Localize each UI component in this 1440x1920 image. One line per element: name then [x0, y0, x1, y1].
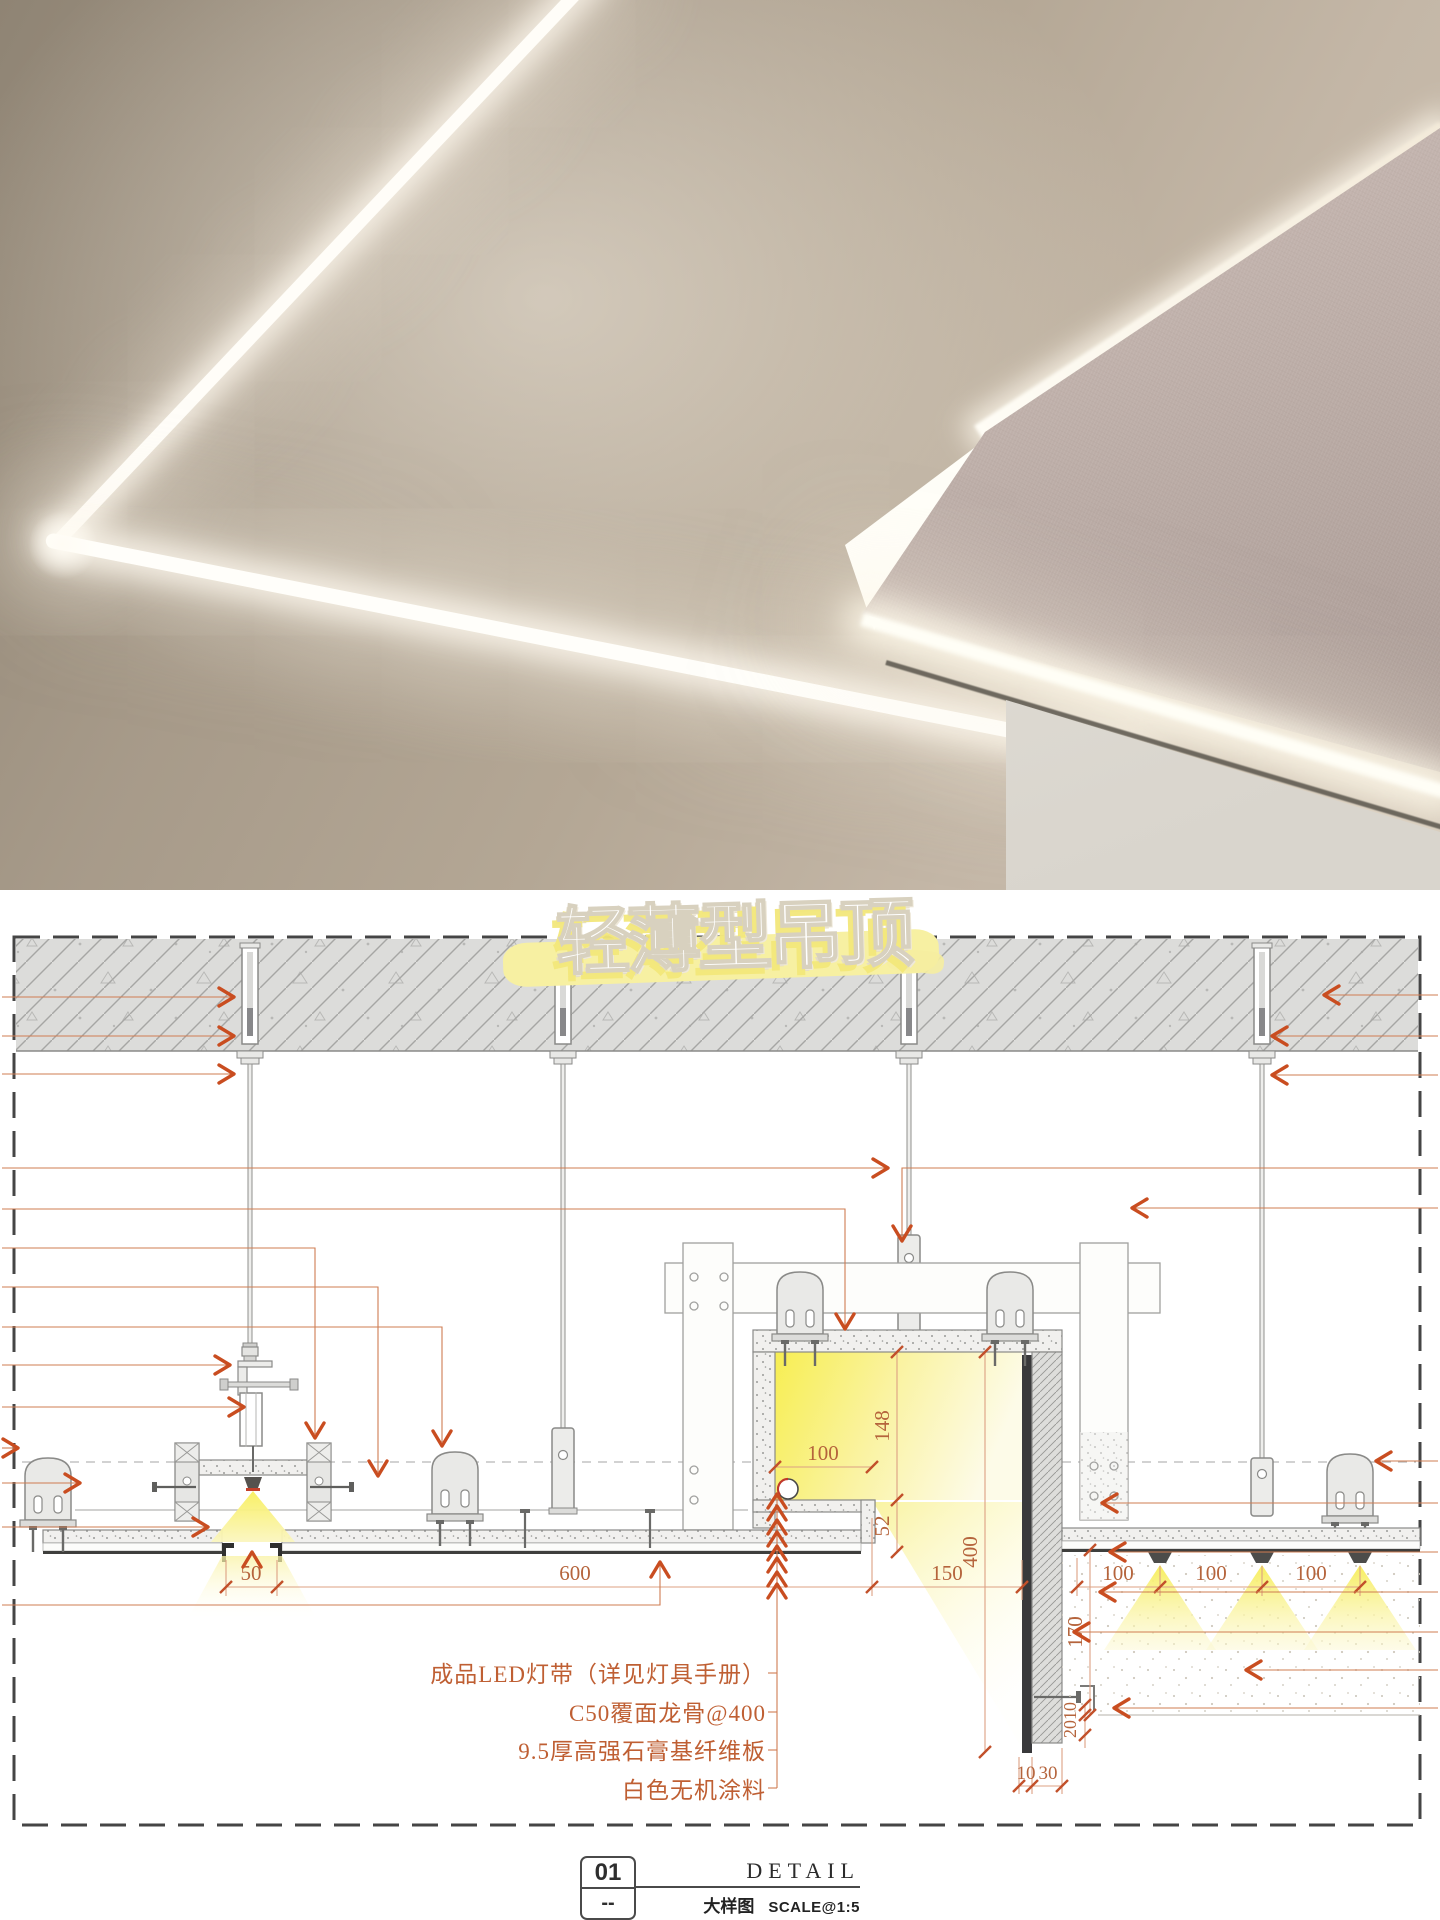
vertical-channel [1251, 1458, 1273, 1516]
light-cone [211, 1491, 295, 1542]
dim-edge-a: 10 [1060, 1702, 1080, 1720]
hanger-bracket [220, 1343, 298, 1446]
callout-furring-channel: C50覆面龙骨@400 [300, 1698, 766, 1737]
dim-spot-gap-2: 100 [1195, 1561, 1227, 1585]
paint-line [43, 1551, 222, 1554]
detail-title-cn: 大样图 [703, 1892, 754, 1917]
detail-number-box: 01 -- [580, 1856, 636, 1920]
dim-spot-gap-1: 100 [1102, 1561, 1134, 1585]
dim-spot-gap-3: 100 [1295, 1561, 1327, 1585]
cove-light-spill [873, 1502, 1022, 1748]
detail-revision: -- [582, 1889, 634, 1918]
dim-edge-b: 20 [1060, 1720, 1080, 1738]
page-title: 轻薄型吊顶 [555, 873, 913, 990]
detail-title-row: 大样图 SCALE@1:5 [634, 1892, 860, 1917]
detail-title-en: DETAIL [634, 1858, 860, 1884]
callout-led-strip: 成品LED灯带（详见灯具手册） [300, 1659, 766, 1698]
dim-cove-step: 52 [870, 1516, 894, 1537]
detail-number: 01 [582, 1858, 634, 1889]
material-callouts: 成品LED灯带（详见灯具手册） C50覆面龙骨@400 9.5厚高强石膏基纤维板… [300, 1659, 766, 1813]
dim-cove-ledge: 100 [807, 1441, 839, 1465]
callout-gypsum-board: 9.5厚高强石膏基纤维板 [300, 1736, 766, 1775]
detail-scale: SCALE@1:5 [768, 1899, 860, 1916]
callout-paint: 白色无机涂料 [300, 1775, 766, 1814]
dim-cove-height: 148 [870, 1410, 894, 1442]
vertical-channel [549, 1428, 577, 1514]
led-strip [778, 1479, 798, 1499]
dim-board-span: 600 [559, 1561, 591, 1585]
lamp [244, 1477, 262, 1488]
title-block-rule [634, 1886, 860, 1888]
dim-drop-total: 400 [958, 1536, 982, 1568]
dim-edge-c: 10 [1017, 1763, 1036, 1784]
dim-edge-d: 30 [1039, 1763, 1058, 1784]
